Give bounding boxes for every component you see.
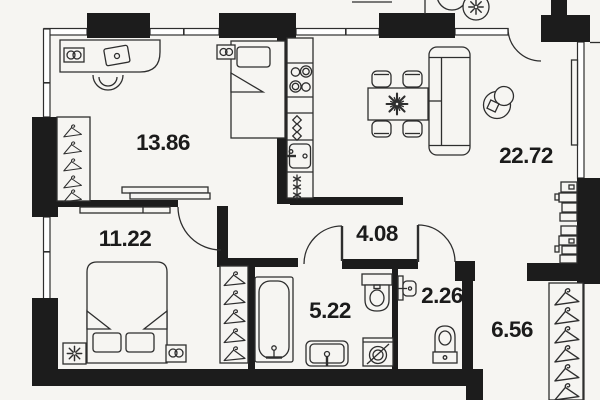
wardrobe-icon: [549, 283, 583, 400]
room-label-6-56: 6.56: [491, 317, 533, 343]
socket-icon: [217, 45, 235, 59]
shelf-icon: [80, 207, 170, 213]
room-label-5-22: 5.22: [309, 298, 351, 324]
double-bed-icon: [87, 262, 167, 363]
room-label-2-26: 2.26: [421, 283, 463, 309]
wardrobe-icon: [220, 266, 248, 363]
room-label-4-08: 4.08: [356, 221, 398, 247]
room-label-22-72: 22.72: [499, 143, 553, 169]
sink-icon: [306, 341, 348, 366]
kitchen-sink-icon: [287, 144, 311, 168]
laptop-icon: [104, 45, 131, 66]
single-bed-icon: [231, 41, 285, 138]
bathtub-icon: [255, 277, 293, 362]
sink-icon: [398, 276, 416, 300]
shelf-icon: [555, 182, 577, 263]
room-label-11-22: 11.22: [99, 226, 152, 252]
wardrobe-icon: [57, 117, 90, 202]
shelf-icon: [122, 187, 210, 199]
socket-icon: [166, 345, 186, 362]
office-chair-icon: [93, 75, 123, 90]
washing-machine-icon: [363, 338, 393, 366]
room-label-13-86: 13.86: [136, 130, 190, 156]
armchair-icon: [484, 87, 514, 119]
floor-plan: 13.86 22.72 11.22 4.08 5.22 2.26 6.56: [0, 0, 600, 400]
tv-icon: [572, 60, 578, 145]
socket-icon: [64, 48, 84, 62]
toilet-icon: [362, 274, 392, 311]
flower-icon: [63, 343, 86, 364]
toilet-icon: [433, 326, 457, 363]
dining-table-icon: [368, 88, 428, 120]
sofa-icon: [429, 47, 470, 155]
